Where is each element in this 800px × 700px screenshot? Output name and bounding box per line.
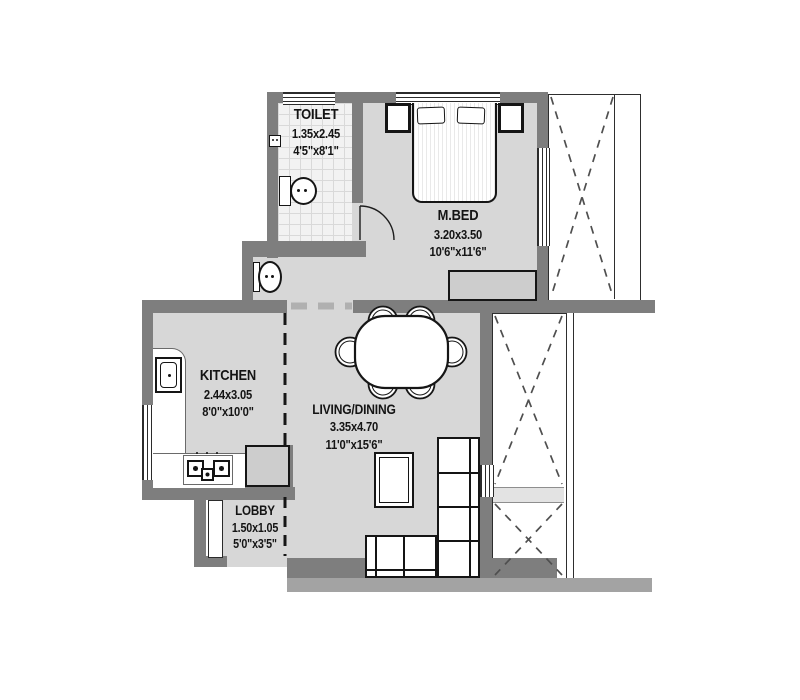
washbasin-bowl (258, 261, 282, 293)
entry-door-leaf (208, 500, 223, 558)
hob-burner-small (201, 468, 214, 481)
living-dining-dim-m: 3.35x4.70 (306, 418, 402, 435)
kitchen-label: KITCHEN 2.44x3.05 8'0"x10'0" (185, 366, 271, 420)
kitchen-platform-box (245, 445, 290, 487)
toilet-label: TOILET 1.35x2.45 4'5"x8'1" (283, 105, 348, 159)
wall-kitchen-bottom (142, 487, 295, 500)
toilet-dim-m: 1.35x2.45 (283, 125, 348, 142)
lobby-dim-m: 1.50x1.05 (226, 520, 284, 537)
toilet-door-gap (352, 203, 363, 241)
living-window (480, 465, 494, 497)
kitchen-dim-ft: 8'0"x10'0" (185, 403, 271, 420)
kitchen-hob (183, 455, 233, 485)
master-bedroom-name: M.BED (411, 206, 506, 226)
bedroom-right-window (537, 148, 550, 246)
master-bedroom-dim-ft: 10'6"x11'6" (411, 243, 506, 260)
void-top-inner-line (614, 95, 615, 299)
wall-kitchen-top (142, 300, 287, 313)
wall-toilet-left (267, 92, 278, 258)
lobby-dim-ft: 5'0"x3'5" (226, 536, 284, 553)
void-bottom-outer-line (573, 313, 574, 578)
void-divider-slab (493, 487, 564, 503)
toilet-window (283, 92, 335, 105)
nightstand-right (498, 103, 524, 133)
sofa-right-arm (437, 437, 480, 578)
wall-toilet-bottom (242, 241, 366, 257)
wc-detail-dot (297, 189, 300, 192)
kitchen-name: KITCHEN (185, 366, 271, 386)
wall-living-right-upper (480, 313, 492, 465)
wc-detail-dot (304, 189, 307, 192)
master-bedroom-dim-m: 3.20x3.50 (411, 226, 506, 243)
void-top-right (548, 94, 641, 302)
living-dining-dim-ft: 11'0"x15'6" (306, 436, 402, 453)
wall-living-right-lower (480, 497, 492, 558)
passage-opening (287, 300, 353, 313)
coffee-table (374, 452, 414, 508)
wall-bedroom-bottom (353, 300, 655, 313)
pillow-left (417, 107, 446, 125)
lobby-name: LOBBY (226, 502, 284, 520)
shower-icon (269, 135, 281, 147)
toilet-name: TOILET (283, 105, 348, 125)
washbasin-tap-dot (271, 275, 274, 278)
wall-bottom-ledge (287, 578, 652, 592)
sofa-bottom-arm (365, 535, 437, 578)
wall-toilet-right (352, 103, 363, 203)
nightstand-left (385, 103, 411, 133)
floor-plan: TOILET 1.35x2.45 4'5"x8'1" M.BED 3.20x3.… (0, 0, 800, 700)
living-dining-name: LIVING/DINING (306, 400, 402, 418)
kitchen-dim-m: 2.44x3.05 (185, 386, 271, 403)
hob-burner (213, 460, 230, 477)
pillow-right (457, 107, 486, 125)
lobby-label: LOBBY 1.50x1.05 5'0"x3'5" (226, 502, 284, 553)
master-bedroom-label: M.BED 3.20x3.50 10'6"x11'6" (411, 206, 506, 260)
washbasin-tap-dot (265, 275, 268, 278)
living-dining-label: LIVING/DINING 3.35x4.70 11'0"x15'6" (306, 400, 402, 453)
toilet-dim-ft: 4'5"x8'1" (283, 142, 348, 159)
kitchen-sink (155, 357, 182, 393)
lobby-threshold (227, 556, 287, 567)
wardrobe (448, 270, 537, 301)
void-bottom-right (492, 313, 567, 580)
